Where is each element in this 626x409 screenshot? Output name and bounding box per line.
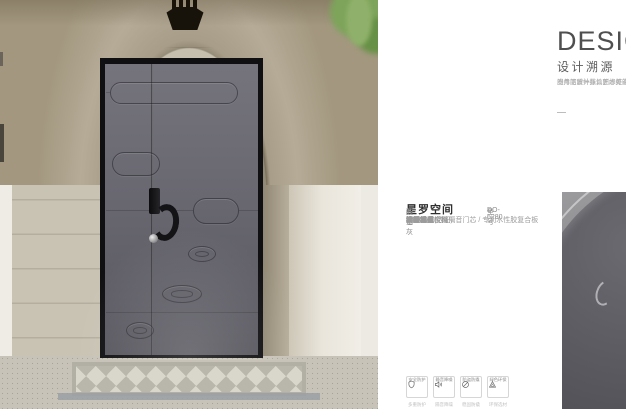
section-dash <box>557 112 566 113</box>
wall-shadow-mark <box>0 52 3 66</box>
right-stone-column <box>289 28 361 360</box>
right-reveal-shadow <box>262 30 289 358</box>
design-paragraph: 岁月下留一抹恰到好处的光影，沉淀出门的质感 门体的设计兼具艺术美学与结构力学的内… <box>557 77 626 117</box>
door-knob <box>149 234 158 243</box>
floor-accent-band <box>58 393 320 400</box>
feature-box-safety: 安全防护 <box>406 376 428 398</box>
feature-caption: 隔音降噪 <box>434 401 454 407</box>
wall-shadow-mark <box>0 124 4 162</box>
wall-niche <box>42 92 58 154</box>
feature-box-eco: 绿色环保 <box>487 376 509 398</box>
door-detail-photo <box>562 192 626 409</box>
feature-label: 静音降噪 <box>436 377 453 382</box>
feature-box-antipry: 防盗防撬 <box>460 376 482 398</box>
door-groove-line <box>106 312 258 313</box>
diamond-floor-tiles <box>76 366 302 392</box>
lantern-body <box>163 5 207 30</box>
door-groove-line <box>106 92 110 93</box>
floor-tile-border <box>72 362 306 396</box>
far-right-wall <box>361 0 378 409</box>
door-groove-capsule <box>112 152 160 176</box>
door-groove-capsule <box>193 198 239 224</box>
door-groove-ellipse-inner <box>171 290 192 297</box>
ceiling-lantern <box>163 0 207 30</box>
design-subheading: 设计溯源 <box>557 58 615 75</box>
feature-label: 安全防护 <box>409 377 426 382</box>
feature-caption: 多重防护 <box>407 401 427 407</box>
design-heading: DESIGN <box>557 26 626 56</box>
door-groove-ellipse <box>162 285 202 303</box>
door-groove-ellipse <box>188 246 216 262</box>
door-groove-ellipse <box>126 322 154 339</box>
door-groove-line <box>239 210 258 211</box>
left-stone-column <box>10 28 100 360</box>
feature-caption: 稳固防撬 <box>461 401 481 407</box>
feature-badges: 安全防护 多重防护 静音降噪 隔音降噪 防盗防撬 稳固防撬 绿色环保 环保选材 <box>406 376 536 409</box>
door-groove-ellipse-inner <box>133 327 148 334</box>
design-paragraph-line: 雅与品质并存，匠心打造，为品质生活保驾护航 <box>557 77 626 90</box>
entrance-photo <box>0 0 378 409</box>
feature-label: 防盗防撬 <box>463 377 480 382</box>
spec-value: 精雕拉手 <box>406 214 434 228</box>
feature-box-soundproof: 静音降噪 <box>433 376 455 398</box>
feature-caption: 环保选材 <box>488 401 508 407</box>
detail-door-surface <box>562 192 626 409</box>
feature-label: 绿色环保 <box>490 377 507 382</box>
catalog-page: DESIGN 设计溯源 岁月下留一抹恰到好处的光影，沉淀出门的质感 门体的设计兼… <box>0 0 626 409</box>
door-groove-capsule <box>110 82 238 104</box>
door-groove-ellipse-inner <box>195 251 210 257</box>
